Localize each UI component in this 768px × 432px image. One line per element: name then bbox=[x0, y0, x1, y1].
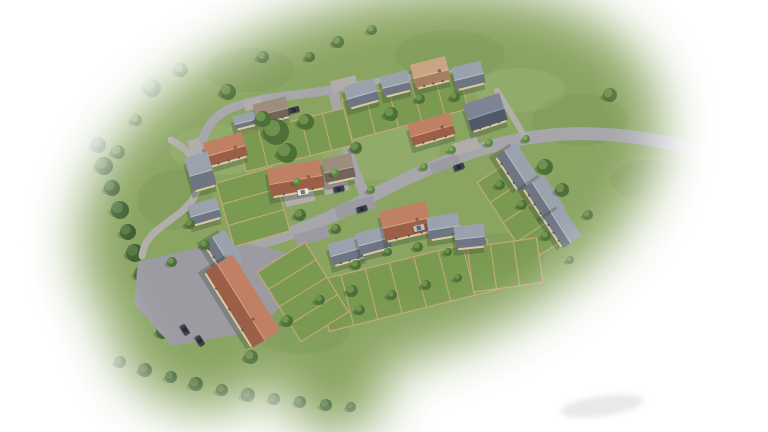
tree-highlight bbox=[346, 402, 352, 408]
tree-highlight bbox=[96, 158, 107, 169]
tree-highlight bbox=[331, 169, 336, 174]
tree-highlight bbox=[331, 224, 337, 230]
tree-highlight bbox=[538, 160, 548, 170]
tree-highlight bbox=[278, 144, 290, 156]
car-glass bbox=[336, 186, 341, 191]
tree-highlight bbox=[114, 356, 121, 363]
tree-highlight bbox=[346, 285, 353, 292]
tree-highlight bbox=[367, 186, 372, 191]
tree-highlight bbox=[421, 280, 427, 286]
tree-highlight bbox=[112, 146, 121, 155]
tree-highlight bbox=[522, 135, 527, 140]
tree-highlight bbox=[294, 209, 301, 216]
tree-highlight bbox=[200, 240, 206, 246]
tree-highlight bbox=[91, 138, 101, 148]
tree-highlight bbox=[256, 112, 266, 122]
tree-highlight bbox=[485, 139, 490, 144]
tree-highlight bbox=[190, 378, 199, 387]
masked-scene bbox=[0, 0, 768, 432]
tree-highlight bbox=[387, 290, 393, 296]
tree-highlight bbox=[320, 399, 327, 406]
tree-highlight bbox=[105, 181, 115, 191]
tree-highlight bbox=[604, 89, 613, 98]
tree-highlight bbox=[257, 51, 264, 58]
tree-highlight bbox=[385, 108, 394, 117]
tree-highlight bbox=[448, 146, 453, 151]
car-glass bbox=[300, 189, 305, 194]
tree-highlight bbox=[305, 52, 311, 58]
tree-highlight bbox=[175, 64, 184, 73]
tree-highlight bbox=[299, 115, 309, 125]
house bbox=[451, 224, 487, 256]
tree-highlight bbox=[294, 396, 301, 403]
tree-highlight bbox=[139, 364, 148, 373]
tree-highlight bbox=[315, 295, 321, 301]
window bbox=[283, 193, 285, 195]
tree-highlight bbox=[293, 178, 298, 183]
tree-highlight bbox=[121, 225, 131, 235]
chimney bbox=[307, 175, 310, 178]
tree-highlight bbox=[541, 231, 547, 237]
tree-highlight bbox=[384, 248, 389, 253]
tree-highlight bbox=[566, 256, 571, 261]
field-texture bbox=[205, 48, 295, 92]
tree-highlight bbox=[444, 248, 449, 253]
tree-highlight bbox=[517, 200, 523, 206]
tree-highlight bbox=[281, 315, 288, 322]
tree-highlight bbox=[112, 202, 123, 213]
tree-highlight bbox=[165, 371, 172, 378]
tree-highlight bbox=[350, 142, 357, 149]
tree-highlight bbox=[367, 25, 373, 31]
tree-highlight bbox=[216, 384, 223, 391]
tree-highlight bbox=[583, 210, 589, 216]
tree-highlight bbox=[332, 36, 339, 43]
tree-highlight bbox=[268, 393, 275, 400]
tree-highlight bbox=[413, 242, 419, 248]
tree-highlight bbox=[450, 92, 456, 98]
field-texture bbox=[610, 160, 690, 200]
aerial-render-stage bbox=[0, 0, 768, 432]
tree-highlight bbox=[221, 85, 231, 95]
tree-highlight bbox=[242, 389, 251, 398]
housing-development-aerial-render bbox=[0, 0, 768, 432]
tree-highlight bbox=[130, 114, 137, 121]
tree-highlight bbox=[127, 245, 138, 256]
tree-highlight bbox=[351, 260, 357, 266]
tree-highlight bbox=[454, 274, 459, 279]
tree-highlight bbox=[245, 351, 254, 360]
tree-highlight bbox=[495, 180, 501, 186]
tree-highlight bbox=[167, 257, 173, 263]
tree-highlight bbox=[556, 184, 565, 193]
tree-highlight bbox=[144, 80, 155, 91]
tree-highlight bbox=[185, 219, 191, 225]
tree-highlight bbox=[355, 305, 361, 311]
tree-highlight bbox=[420, 163, 425, 168]
tree-highlight bbox=[415, 94, 421, 100]
window bbox=[311, 188, 313, 190]
